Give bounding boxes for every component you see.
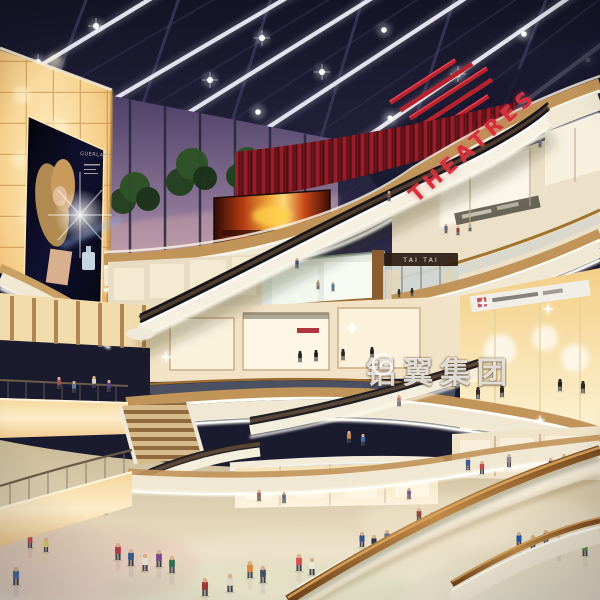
vignette bbox=[0, 0, 600, 600]
mall-scene bbox=[0, 0, 600, 600]
mall-atrium-rendering: THEATRES TAI TAI GUERLAIN 铝翼集团 bbox=[0, 0, 600, 600]
